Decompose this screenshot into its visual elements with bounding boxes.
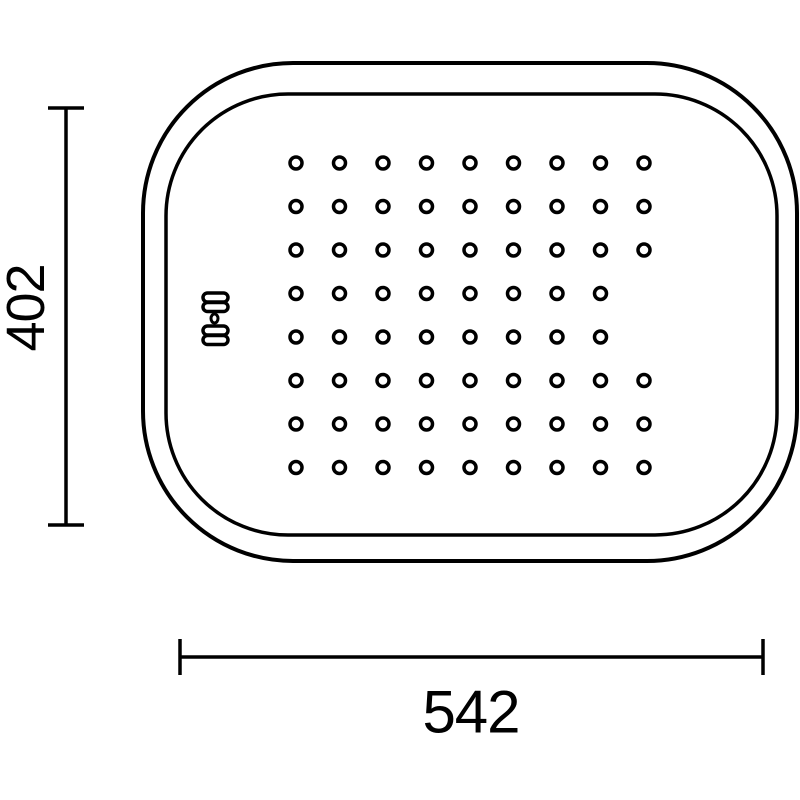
drain-hole — [377, 288, 389, 300]
drain-hole — [595, 375, 607, 387]
drain-hole — [595, 418, 607, 430]
drain-hole — [638, 375, 650, 387]
drain-hole — [508, 375, 520, 387]
drain-hole — [551, 201, 563, 213]
drain-hole — [334, 157, 346, 169]
drain-hole — [508, 244, 520, 256]
drain-hole — [551, 331, 563, 343]
drainer-tray-drawing: 402 542 — [0, 0, 800, 800]
drain-hole — [551, 418, 563, 430]
drain-hole — [290, 331, 302, 343]
tray-inner-edge — [166, 94, 777, 535]
drain-hole — [551, 244, 563, 256]
drain-hole — [377, 462, 389, 474]
drain-hole — [595, 244, 607, 256]
drain-hole — [551, 288, 563, 300]
drain-hole — [508, 201, 520, 213]
width-dimension-label: 542 — [422, 679, 519, 746]
drain-hole — [551, 462, 563, 474]
drain-hole — [334, 375, 346, 387]
drain-hole — [551, 375, 563, 387]
drain-hole — [638, 244, 650, 256]
brand-mark-pill — [203, 293, 228, 302]
drain-hole — [290, 375, 302, 387]
drain-hole — [508, 418, 520, 430]
height-dimension-label: 402 — [0, 264, 56, 351]
drain-hole — [334, 201, 346, 213]
brand-mark-pill — [203, 326, 228, 335]
drain-hole — [377, 331, 389, 343]
drain-hole — [421, 375, 433, 387]
tray-outline-group — [143, 63, 797, 561]
drain-hole — [464, 418, 476, 430]
technical-drawing-page: 402 542 — [0, 0, 800, 800]
drain-hole — [508, 331, 520, 343]
drain-hole — [464, 201, 476, 213]
drain-hole — [290, 157, 302, 169]
drain-hole — [464, 375, 476, 387]
brand-mark-oval — [211, 314, 218, 323]
drain-hole — [421, 244, 433, 256]
drain-hole — [464, 244, 476, 256]
drain-hole — [290, 462, 302, 474]
drain-hole — [508, 288, 520, 300]
drain-hole — [377, 375, 389, 387]
drain-hole — [595, 157, 607, 169]
drain-holes-grid — [290, 157, 650, 474]
drain-hole — [421, 331, 433, 343]
drain-hole — [334, 244, 346, 256]
drain-hole — [508, 462, 520, 474]
drain-hole — [638, 201, 650, 213]
drain-hole — [464, 331, 476, 343]
drain-hole — [334, 418, 346, 430]
drain-hole — [290, 201, 302, 213]
drain-hole — [638, 157, 650, 169]
drain-hole — [421, 157, 433, 169]
drain-hole — [290, 288, 302, 300]
drain-hole — [377, 418, 389, 430]
drain-hole — [334, 288, 346, 300]
drain-hole — [551, 157, 563, 169]
brand-mark — [203, 293, 228, 345]
drain-hole — [377, 244, 389, 256]
drain-hole — [595, 201, 607, 213]
tray-outer-edge — [143, 63, 797, 561]
drain-hole — [464, 462, 476, 474]
brand-mark-pill — [203, 336, 228, 345]
brand-mark-pill — [203, 303, 228, 312]
drain-hole — [334, 462, 346, 474]
drain-hole — [464, 157, 476, 169]
drain-hole — [595, 462, 607, 474]
drain-hole — [290, 244, 302, 256]
drain-hole — [377, 201, 389, 213]
drain-hole — [638, 462, 650, 474]
drain-hole — [421, 201, 433, 213]
drain-hole — [421, 462, 433, 474]
drain-hole — [508, 157, 520, 169]
drain-hole — [421, 418, 433, 430]
drain-hole — [421, 288, 433, 300]
drain-hole — [377, 157, 389, 169]
drain-hole — [290, 418, 302, 430]
drain-hole — [464, 288, 476, 300]
dimension-lines-group — [48, 108, 763, 675]
drain-hole — [638, 418, 650, 430]
drain-hole — [334, 331, 346, 343]
drain-hole — [595, 288, 607, 300]
drain-hole — [595, 331, 607, 343]
